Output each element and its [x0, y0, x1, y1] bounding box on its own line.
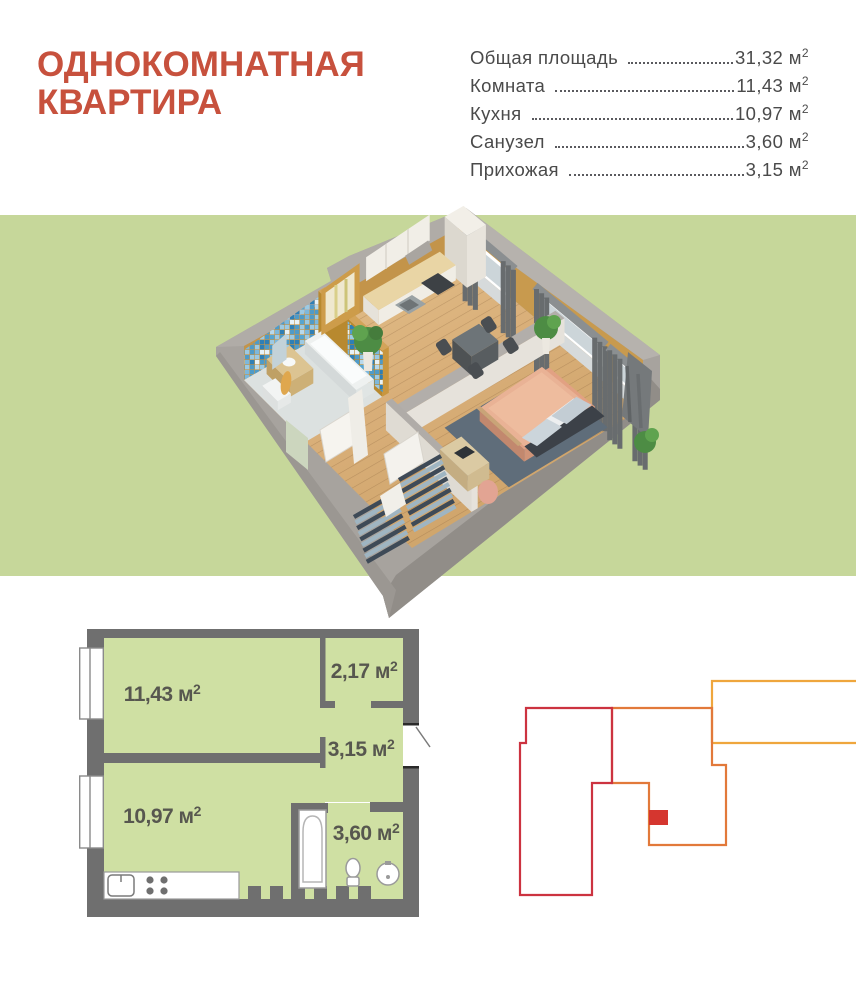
svg-text:2,17 м2: 2,17 м2	[331, 658, 398, 683]
svg-text:3,60 м2: 3,60 м2	[333, 820, 400, 845]
svg-text:10,97 м2: 10,97 м2	[123, 803, 201, 828]
svg-text:3,15 м2: 3,15 м2	[328, 736, 395, 761]
svg-text:11,43 м2: 11,43 м2	[124, 681, 201, 706]
